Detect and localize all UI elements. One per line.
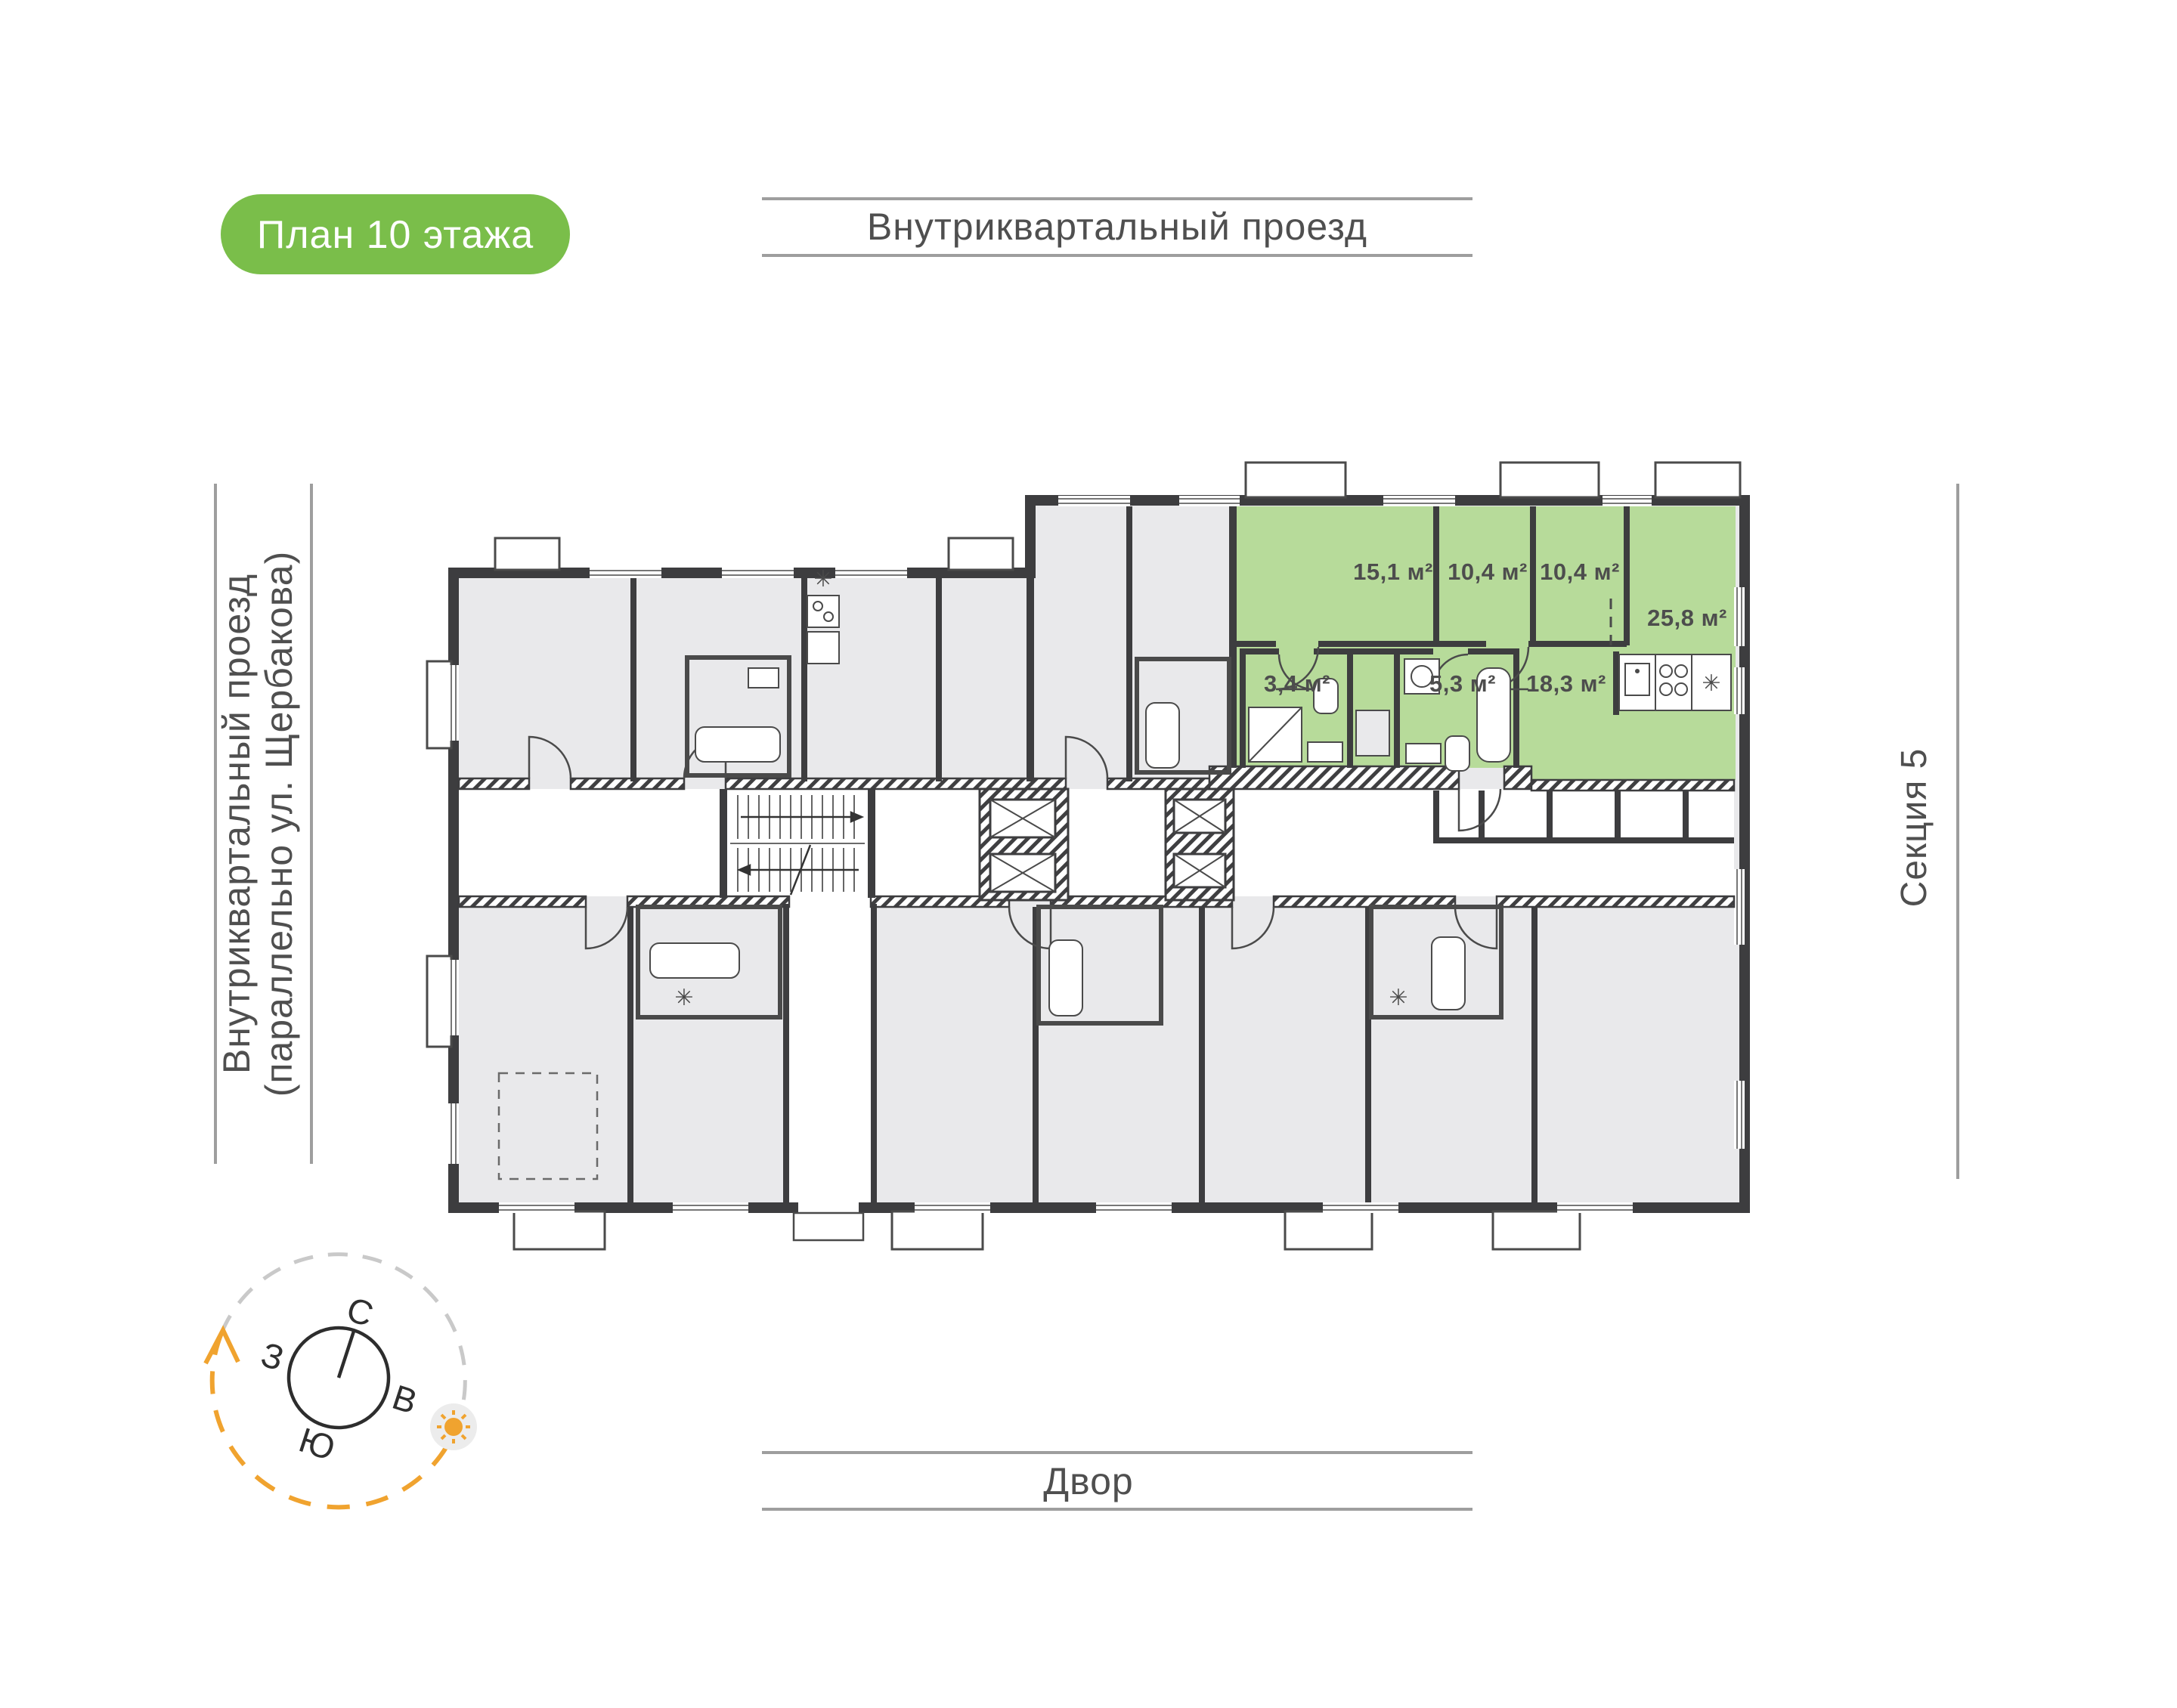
balcony — [1493, 1211, 1580, 1249]
room-area-label: 3,4 м² — [1264, 670, 1330, 697]
balcony — [1246, 463, 1346, 497]
fridge-icon: ✳ — [674, 986, 693, 1010]
room-area-label: 10,4 м² — [1448, 559, 1528, 585]
fridge-icon: ✳ — [1702, 671, 1720, 696]
compass-dial: С З В Ю — [235, 1268, 444, 1487]
balcony — [892, 1211, 983, 1249]
north-label: С — [342, 1289, 379, 1335]
floor-plan-canvas: План 10 этажа Внутриквартальный проезд В… — [0, 0, 2177, 1708]
entrance-lobby — [789, 896, 871, 1202]
room-area-label: 10,4 м² — [1540, 559, 1620, 585]
road-bottom-label: Двор — [1043, 1460, 1133, 1502]
fridge-icon: ✳ — [1389, 986, 1407, 1010]
balcony — [949, 538, 1013, 570]
compass-arrow-icon — [206, 1330, 238, 1363]
fridge-icon: ✳ — [813, 567, 832, 592]
building: ✳ ✳ ✳ ✳ 15,1 м² 10,4 м² 10,4 м² 25,8 м² … — [427, 463, 1745, 1249]
west-label: З — [256, 1335, 289, 1378]
balcony — [427, 956, 451, 1047]
balcony — [1655, 463, 1740, 497]
floor-plan-page: План 10 этажа Внутриквартальный проезд В… — [0, 0, 2177, 1708]
room-area-label: 15,1 м² — [1353, 559, 1433, 585]
balcony — [514, 1211, 605, 1249]
east-label: В — [388, 1377, 422, 1422]
room-area-label: 5,3 м² — [1429, 670, 1496, 697]
room-area-label: 25,8 м² — [1647, 605, 1727, 631]
entrance-porch — [794, 1213, 863, 1240]
road-left-label-line2: (параллельно ул. Щербакова) — [258, 551, 300, 1097]
balcony — [1285, 1211, 1372, 1249]
room-area-label: 18,3 м² — [1526, 670, 1606, 697]
balcony — [1500, 463, 1599, 497]
badge-label: План 10 этажа — [257, 213, 534, 257]
section-label: Секция 5 — [1894, 748, 1934, 908]
balcony — [427, 661, 451, 748]
floor-badge: План 10 этажа — [221, 194, 570, 274]
balcony — [495, 538, 559, 570]
compass: С З В Ю — [206, 1255, 477, 1508]
road-left-label-line1: Внутриквартальный проезд — [215, 574, 258, 1074]
road-top-label: Внутриквартальный проезд — [867, 206, 1367, 248]
